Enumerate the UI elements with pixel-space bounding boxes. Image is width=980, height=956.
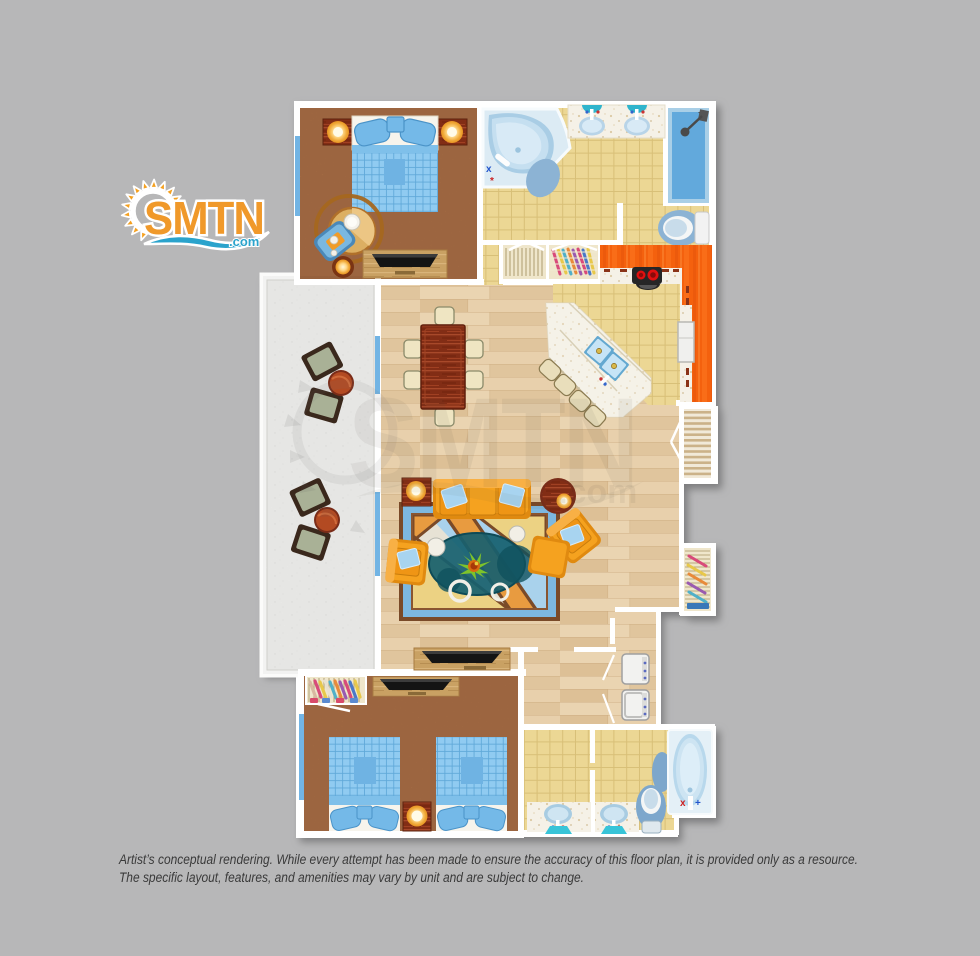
svg-text:The specific layout, features,: The specific layout, features, and ameni… [119, 870, 584, 886]
svg-text:x: x [680, 798, 686, 809]
svg-text:Artist’s conceptual rendering.: Artist’s conceptual rendering. While eve… [118, 852, 858, 868]
svg-text:.com: .com [229, 234, 259, 249]
svg-text:x: x [486, 164, 492, 175]
svg-text:*: * [490, 176, 494, 187]
svg-text:+: + [695, 798, 701, 809]
svg-text:.com: .com [558, 473, 637, 511]
